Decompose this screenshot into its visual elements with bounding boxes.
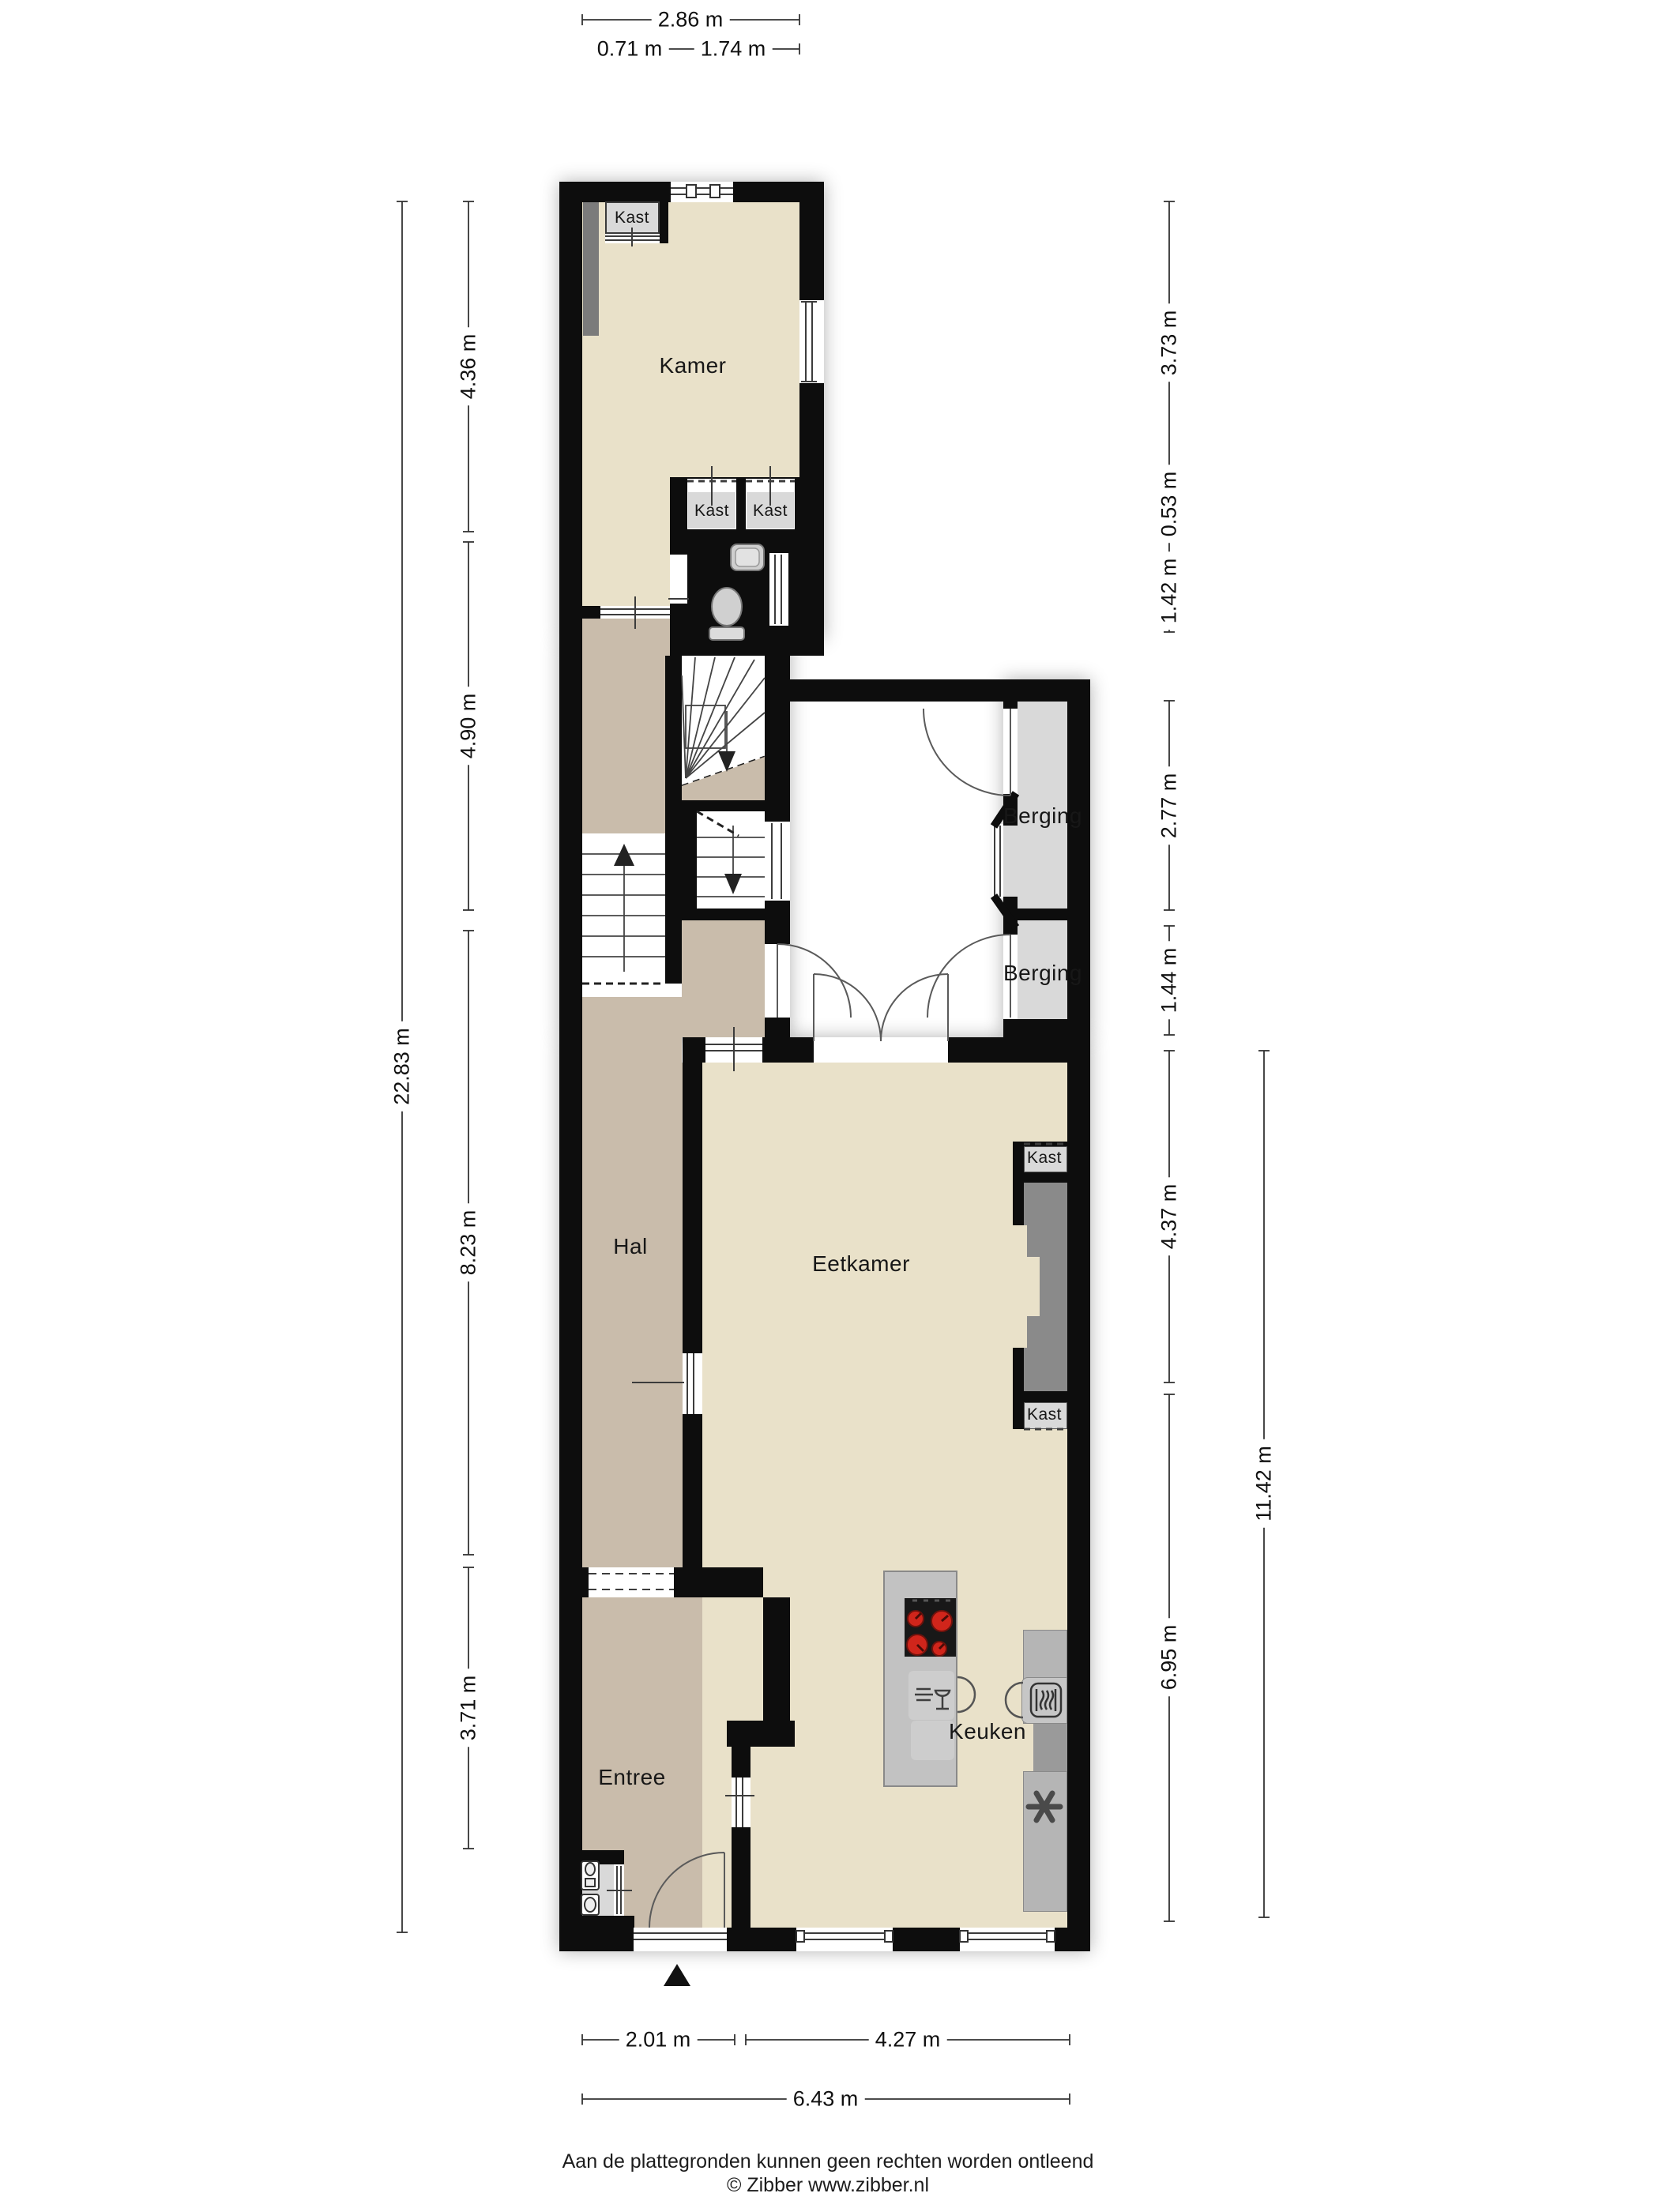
room-label-berging-2: Berging — [1003, 961, 1082, 986]
extractor-fan-icon — [1029, 1793, 1060, 1820]
door-hal-eetkamer-lines — [632, 1353, 694, 1414]
room-label-kast-3: Kast — [1027, 1149, 1062, 1168]
double-door-right-swing — [881, 974, 948, 1041]
opening-hal-entree-dashes — [589, 1574, 674, 1589]
hob-icon — [907, 1601, 952, 1656]
room-label-keuken: Keuken — [949, 1719, 1026, 1744]
dim-label-left-1: 4.90 m — [457, 687, 481, 766]
window-berging-bay-glazing — [995, 826, 1000, 897]
window-top-glazing — [671, 185, 733, 197]
dim-label-top-left: 0.71 m — [591, 37, 669, 62]
room-label-kamer: Kamer — [660, 353, 727, 378]
dim-label-left-0: 4.36 m — [457, 328, 481, 406]
dimension-lines — [397, 14, 1270, 2105]
dim-label-right-total: 11.42 m — [1252, 1439, 1277, 1528]
dim-label-top-total: 2.86 m — [652, 8, 730, 32]
floorplan-canvas: Kamer Kast Kast Kast Berging Berging Hal… — [0, 0, 1659, 2212]
plan-linework — [0, 0, 1659, 2212]
doors — [649, 709, 1010, 1928]
room-label-hal: Hal — [613, 1234, 648, 1259]
dim-left-inner — [463, 201, 474, 1849]
dim-label-right-3: 2.77 m — [1157, 767, 1182, 845]
window-bottom-2-glazing — [960, 1931, 1055, 1942]
room-label-kast-1: Kast — [694, 502, 729, 521]
window-bottom-1-glazing — [796, 1931, 893, 1942]
room-label-berging-1: Berging — [1003, 803, 1082, 829]
footer-disclaimer: Aan de plattegronden kunnen geen rechten… — [562, 2150, 1094, 2173]
counter-arcs — [957, 1677, 1023, 1717]
window-kamer-right-glazing — [801, 302, 817, 382]
straight-stair — [582, 854, 665, 972]
dim-label-right-0: 3.73 m — [1157, 304, 1182, 382]
dim-label-left-3: 3.71 m — [457, 1669, 481, 1747]
footer-copyright: © Zibber www.zibber.nl — [727, 2174, 929, 2197]
dim-label-bottom-right: 4.27 m — [869, 2028, 947, 2052]
dim-label-bottom-left: 2.01 m — [619, 2028, 698, 2052]
oven-icon — [1031, 1683, 1061, 1717]
window-toilet-glazing — [775, 555, 781, 624]
stair-arrow-up — [614, 844, 634, 866]
dim-label-right-5: 4.37 m — [1157, 1178, 1182, 1256]
dim-label-right-6: 6.95 m — [1157, 1619, 1182, 1697]
entrance-marker — [664, 1964, 690, 1986]
front-door-swing — [649, 1853, 724, 1928]
room-label-entree: Entree — [598, 1765, 666, 1790]
meter-icons — [581, 1861, 599, 1915]
dim-label-right-2: 1.42 m — [1157, 552, 1182, 630]
room-label-kast-top: Kast — [615, 209, 649, 228]
room-label-kast-4: Kast — [1027, 1405, 1062, 1424]
berging2-door-swing — [927, 935, 1010, 1018]
window-entree-glazing — [725, 1777, 754, 1827]
lower-stair-arrow-down — [724, 874, 742, 894]
room-label-eetkamer: Eetkamer — [812, 1251, 910, 1277]
berging1-door-swing — [924, 709, 1010, 796]
kast-ticks — [712, 466, 770, 506]
dim-label-bottom-total: 6.43 m — [787, 2087, 865, 2112]
dim-label-right-1: 0.53 m — [1157, 465, 1182, 544]
toilet-icon — [709, 588, 744, 640]
door-front-threshold — [634, 1933, 727, 1939]
window-stair-east-glazing — [772, 823, 781, 899]
double-door-left-swing — [814, 974, 881, 1041]
dim-label-right-4: 1.44 m — [1157, 942, 1182, 1020]
sink-icon — [731, 544, 764, 570]
dim-label-top-right: 1.74 m — [694, 37, 773, 62]
door-eetkamer-north-lines — [705, 1027, 762, 1071]
door-kamer-hal-lines — [600, 596, 670, 629]
kast-top-shelf-lines — [605, 228, 660, 246]
dim-label-left-2: 8.23 m — [457, 1204, 481, 1282]
room-label-kast-2: Kast — [753, 502, 788, 521]
window-meterkast-glazing — [607, 1866, 632, 1914]
dishwasher-icon — [915, 1689, 950, 1709]
dim-label-left-total: 22.83 m — [390, 1021, 415, 1112]
